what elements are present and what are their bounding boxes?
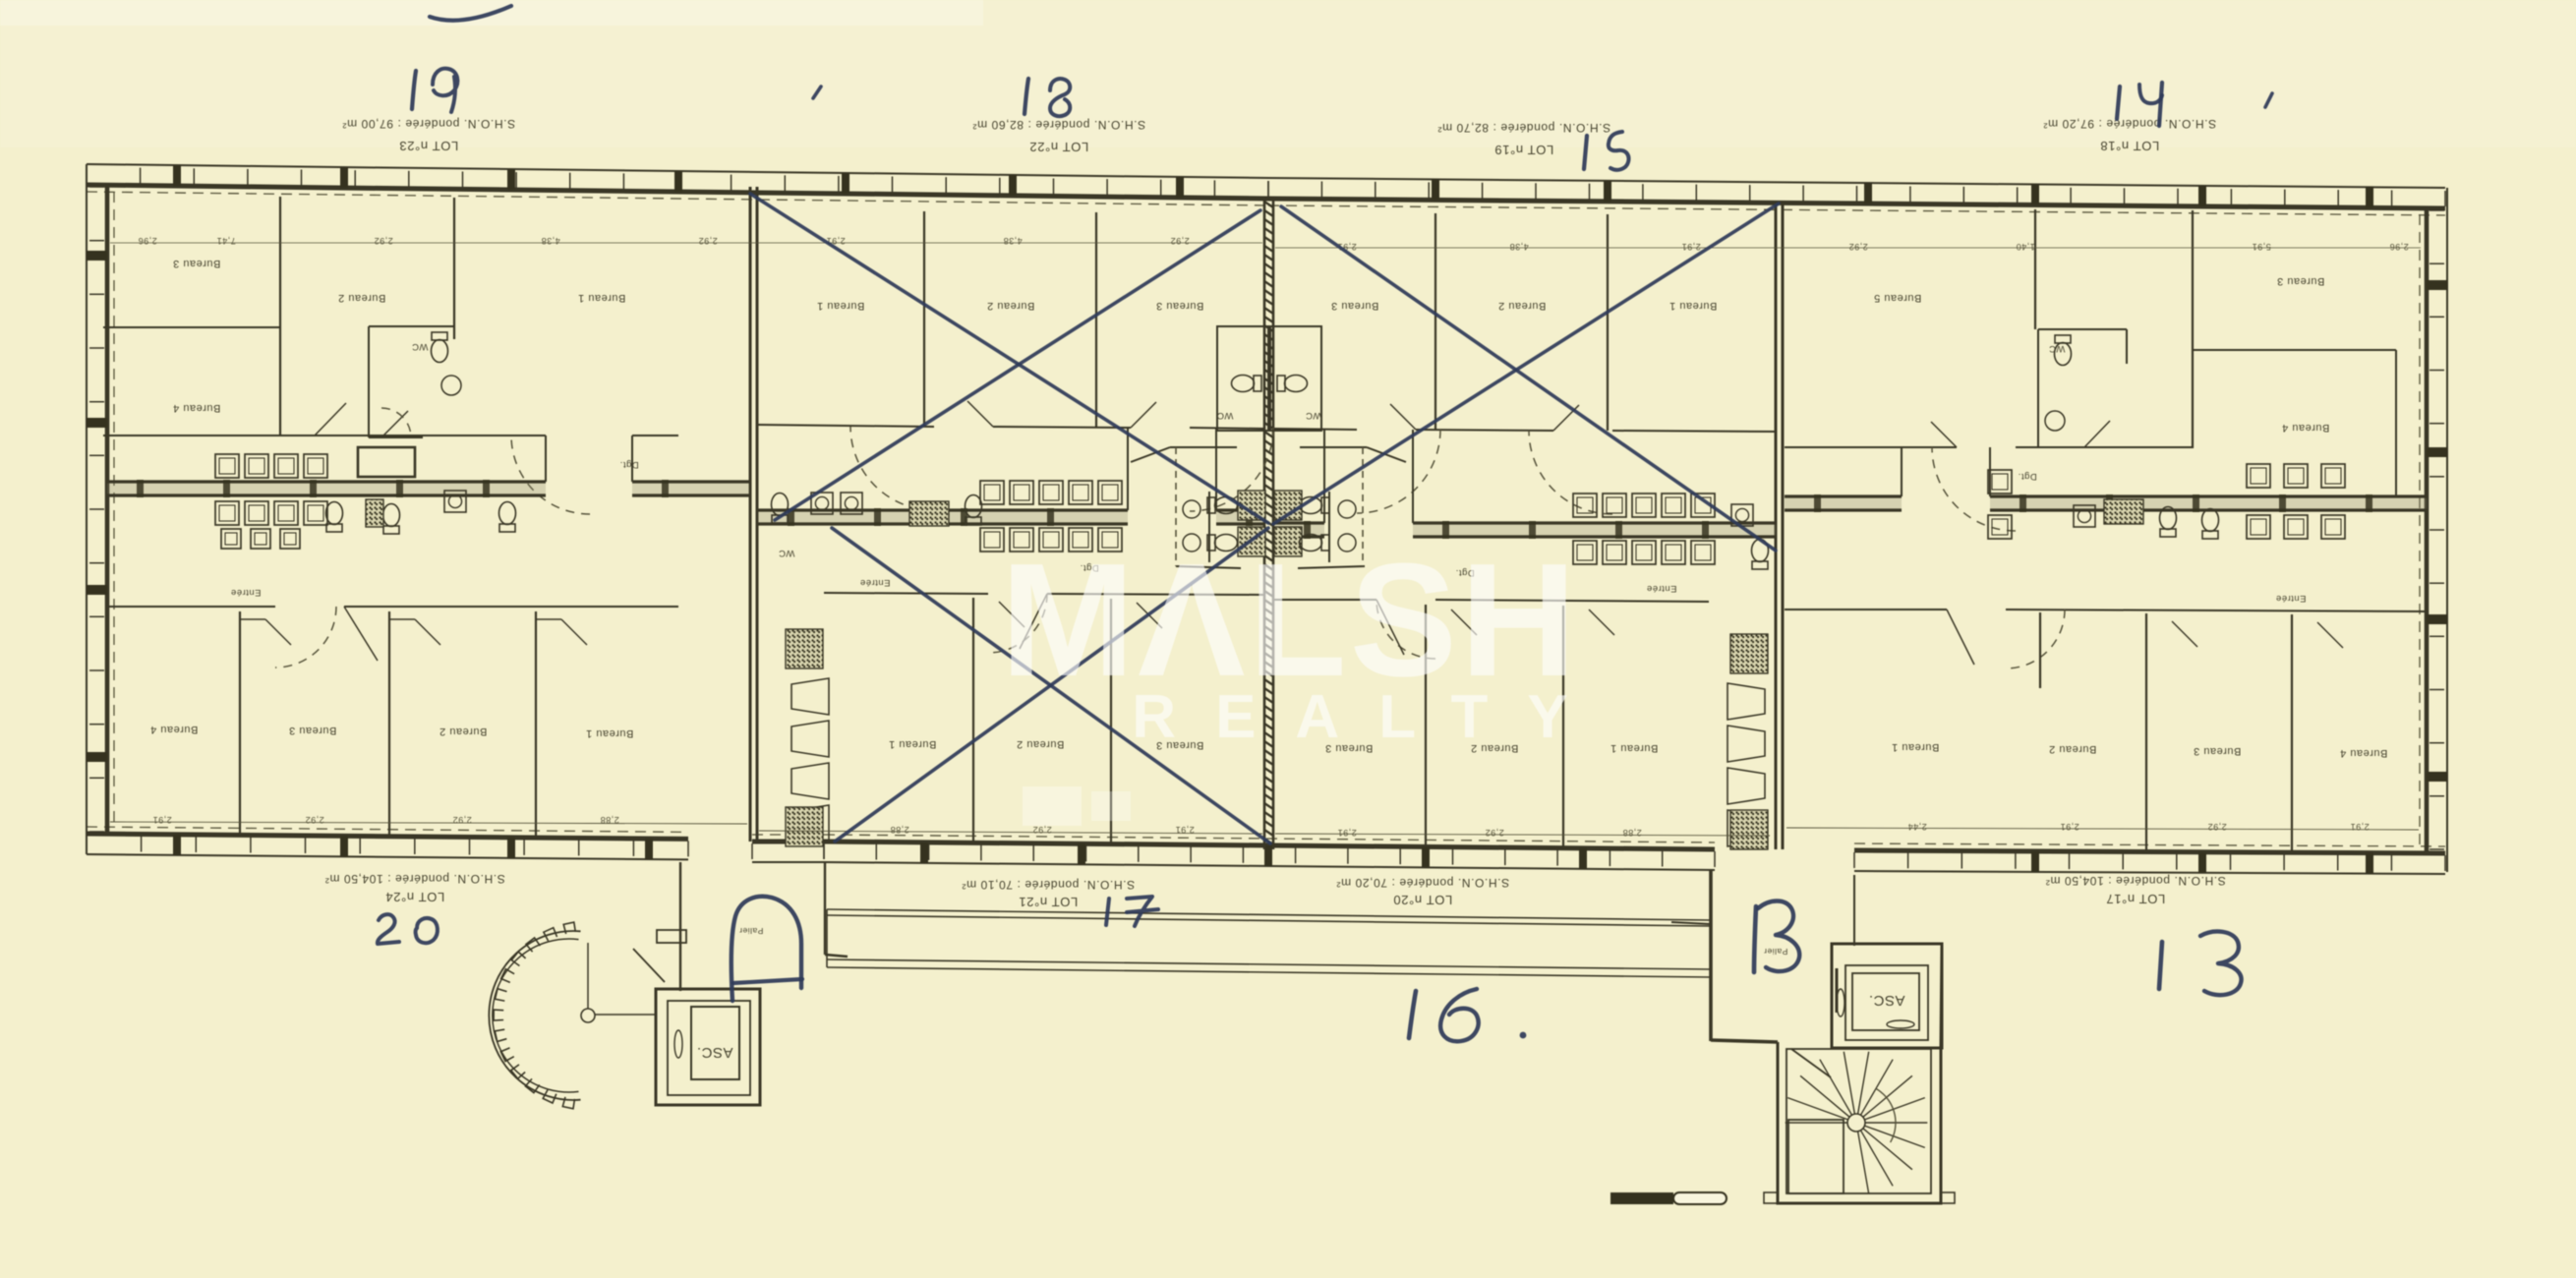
svg-text:2,92: 2,92 <box>305 815 324 825</box>
svg-text:Bureau 2: Bureau 2 <box>1017 738 1065 750</box>
svg-text:4,38: 4,38 <box>541 236 560 246</box>
svg-text:2,88: 2,88 <box>890 825 909 835</box>
svg-text:WC: WC <box>1217 410 1234 421</box>
svg-text:Bureau 4: Bureau 4 <box>150 724 199 735</box>
svg-text:Bureau 2: Bureau 2 <box>1498 300 1547 312</box>
svg-text:2,92: 2,92 <box>2207 822 2227 832</box>
svg-text:ASC.: ASC. <box>696 1044 732 1061</box>
svg-text:2,92: 2,92 <box>452 815 472 825</box>
svg-text:Entrée: Entrée <box>231 587 262 598</box>
svg-text:Bureau 3: Bureau 3 <box>2277 275 2325 287</box>
svg-text:Palier: Palier <box>1764 947 1788 957</box>
svg-text:2,92: 2,92 <box>698 236 718 246</box>
svg-text:Entrée: Entrée <box>2276 593 2307 604</box>
svg-text:LOT n°19: LOT n°19 <box>1494 143 1553 157</box>
svg-text:WC: WC <box>2049 343 2066 354</box>
svg-text:REALTY: REALTY <box>1132 683 1607 751</box>
svg-text:Bureau 3: Bureau 3 <box>173 258 221 269</box>
svg-text:7,41: 7,41 <box>216 236 236 246</box>
svg-text:S.H.O.N. pondérée : 104,50 m²: S.H.O.N. pondérée : 104,50 m² <box>2045 874 2225 888</box>
svg-text:Bureau 4: Bureau 4 <box>2282 422 2330 434</box>
svg-text:S.H.O.N. pondérée : 70,10 m²: S.H.O.N. pondérée : 70,10 m² <box>962 878 1135 892</box>
svg-text:Bureau 1: Bureau 1 <box>586 727 634 739</box>
svg-text:Bureau 2: Bureau 2 <box>987 300 1035 312</box>
svg-text:Bureau 3: Bureau 3 <box>289 725 337 736</box>
svg-text:ASC.: ASC. <box>1868 992 1904 1009</box>
svg-text:2,91: 2,91 <box>1175 825 1195 835</box>
svg-text:Entrée: Entrée <box>860 577 891 588</box>
svg-text:2,88: 2,88 <box>1622 828 1642 838</box>
svg-text:2,96: 2,96 <box>2389 242 2409 252</box>
svg-text:2,92: 2,92 <box>1848 242 1868 252</box>
svg-text:2,91: 2,91 <box>152 815 172 825</box>
svg-text:Dgt.: Dgt. <box>2018 471 2036 482</box>
svg-text:2,96: 2,96 <box>138 236 157 246</box>
svg-text:2,92: 2,92 <box>374 236 393 246</box>
svg-text:LOT n°23: LOT n°23 <box>399 139 458 153</box>
svg-text:2,92: 2,92 <box>1485 828 1504 838</box>
svg-text:Bureau 3: Bureau 3 <box>1331 300 1379 312</box>
svg-text:Bureau 1: Bureau 1 <box>578 292 626 304</box>
svg-text:2,91: 2,91 <box>1337 828 1357 838</box>
svg-text:LOT n°20: LOT n°20 <box>1393 893 1452 907</box>
svg-text:1,40: 1,40 <box>2016 242 2035 252</box>
svg-text:WC: WC <box>779 548 795 558</box>
svg-text:Bureau 2: Bureau 2 <box>439 726 488 737</box>
svg-text:WC: WC <box>1306 410 1322 421</box>
svg-text:LOT n°18: LOT n°18 <box>2100 139 2159 153</box>
svg-text:LOT n°22: LOT n°22 <box>1029 140 1088 154</box>
svg-text:WC: WC <box>412 341 429 352</box>
svg-text:S.H.O.N. pondérée : 97,20 m²: S.H.O.N. pondérée : 97,20 m² <box>2043 117 2216 131</box>
svg-text:Bureau 3: Bureau 3 <box>2194 745 2242 757</box>
svg-text:2,91: 2,91 <box>1681 242 1701 252</box>
svg-text:Bureau 1: Bureau 1 <box>1892 741 1940 753</box>
svg-text:Bureau 5: Bureau 5 <box>1874 292 1922 304</box>
svg-text:2,88: 2,88 <box>600 815 619 825</box>
svg-text:Palier: Palier <box>739 926 764 936</box>
svg-text:Bureau 2: Bureau 2 <box>338 292 386 304</box>
svg-text:2,92: 2,92 <box>1032 825 1052 835</box>
svg-text:Bureau 1: Bureau 1 <box>1610 742 1659 754</box>
svg-text:S.H.O.N. pondérée : 82,70 m²: S.H.O.N. pondérée : 82,70 m² <box>1437 121 1610 135</box>
svg-text:Bureau 3: Bureau 3 <box>1156 300 1204 312</box>
svg-text:4,38: 4,38 <box>1509 242 1529 252</box>
svg-text:Bureau 4: Bureau 4 <box>173 402 221 414</box>
svg-text:S.H.O.N. pondérée : 82,60 m²: S.H.O.N. pondérée : 82,60 m² <box>972 118 1145 132</box>
svg-text:LOT n°17: LOT n°17 <box>2106 892 2165 906</box>
svg-text:2,91: 2,91 <box>2060 822 2079 832</box>
svg-text:S.H.O.N. pondérée : 97,00 m²: S.H.O.N. pondérée : 97,00 m² <box>342 117 515 131</box>
svg-text:Bureau 4: Bureau 4 <box>2340 747 2388 759</box>
svg-text:Entrée: Entrée <box>1647 583 1677 594</box>
svg-text:S.H.O.N. pondérée : 104,50 m²: S.H.O.N. pondérée : 104,50 m² <box>324 872 504 886</box>
svg-text:2,44: 2,44 <box>1907 822 1927 832</box>
svg-text:5,91: 5,91 <box>2252 242 2271 252</box>
svg-text:Bureau 1: Bureau 1 <box>889 738 937 750</box>
svg-text:4,38: 4,38 <box>1003 236 1023 246</box>
svg-text:Bureau 1: Bureau 1 <box>817 300 865 312</box>
svg-text:Bureau 1: Bureau 1 <box>1669 300 1718 312</box>
svg-text:S.H.O.N. pondérée : 70,20 m²: S.H.O.N. pondérée : 70,20 m² <box>1336 876 1509 890</box>
svg-text:Bureau 2: Bureau 2 <box>2049 743 2097 755</box>
svg-text:2,92: 2,92 <box>1170 236 1190 246</box>
svg-text:LOT n°24: LOT n°24 <box>385 890 444 904</box>
svg-text:Dgt.: Dgt. <box>619 459 638 470</box>
svg-text:2,91: 2,91 <box>2350 822 2370 832</box>
svg-text:LOT n°21: LOT n°21 <box>1019 895 1078 909</box>
